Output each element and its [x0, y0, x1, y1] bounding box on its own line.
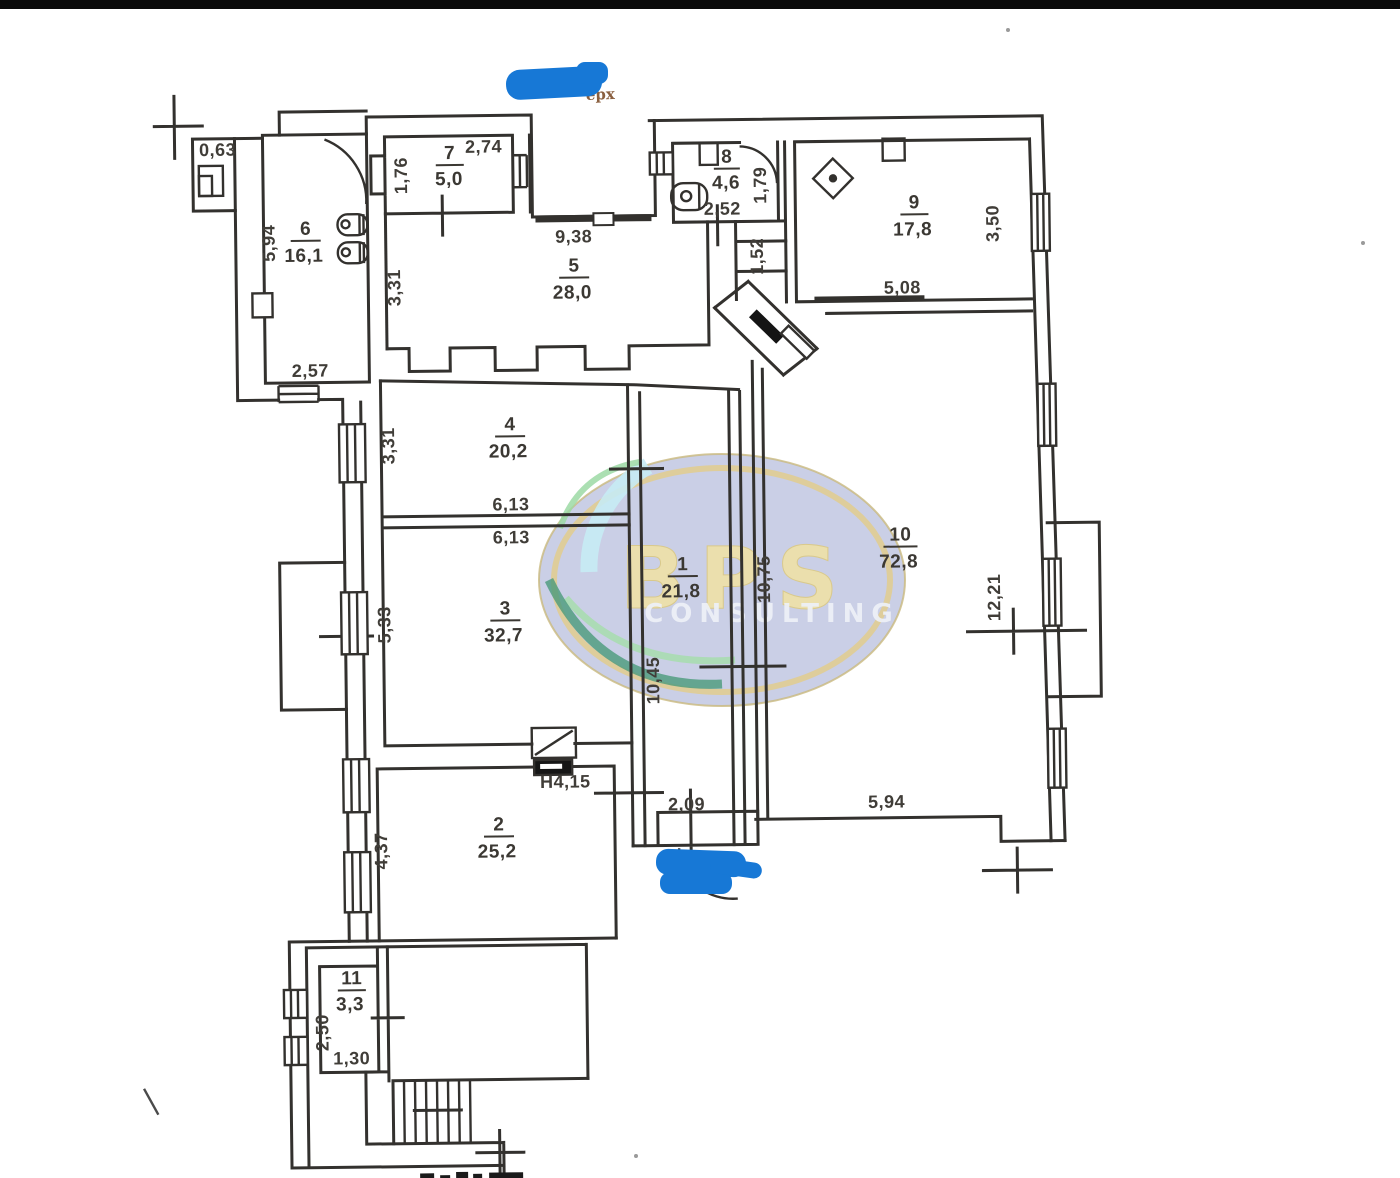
- scanned-floorplan-page: BPS CONSULTING: [0, 0, 1400, 1178]
- bathtub-icon: [671, 183, 707, 210]
- dim-3-31-top: 3,31: [384, 269, 404, 306]
- window-icon: [1031, 194, 1050, 251]
- room-4-number: 4: [504, 414, 515, 435]
- scan-edge-bar: [0, 0, 1400, 9]
- entry-fixture: [199, 166, 223, 196]
- window-icon: [650, 152, 673, 174]
- window-band: [814, 298, 924, 299]
- room-5-area: 28,0: [553, 282, 592, 303]
- dim-0-63: 0,63: [199, 140, 236, 160]
- hearth-icon: [532, 728, 577, 776]
- window-icon: [1043, 559, 1062, 626]
- dim-2-74: 2,74: [465, 136, 502, 156]
- redaction-marker-top: [505, 62, 608, 100]
- room-10-area: 72,8: [879, 551, 918, 572]
- fireplace-icon: [749, 309, 784, 343]
- floorplan-drawing: BPS CONSULTING: [0, 0, 1400, 1178]
- stray-mark: [144, 1089, 158, 1115]
- dim-1-76: 1,76: [391, 157, 411, 194]
- dim-6-13-b: 6,13: [493, 527, 530, 547]
- dim-2-52: 2,52: [704, 198, 741, 218]
- redaction-marker-bottom: [656, 848, 763, 894]
- window-icon: [1038, 384, 1057, 446]
- room-1-area: 21,8: [661, 581, 700, 602]
- dim-3-50: 3,50: [982, 205, 1002, 242]
- window-icon: [1048, 729, 1067, 788]
- dim-6-13-a: 6,13: [492, 494, 529, 514]
- dim-1-52: 1,52: [747, 238, 767, 275]
- window-icon: [284, 990, 307, 1018]
- dim-5-33: 5,33: [374, 606, 394, 643]
- room-8-number: 8: [721, 147, 732, 168]
- room-5-number: 5: [568, 255, 579, 276]
- dim-2-50: 2,50: [312, 1014, 332, 1051]
- room-1-number: 1: [677, 554, 688, 575]
- window-icon: [341, 592, 368, 654]
- dim-1-30: 1,30: [333, 1048, 370, 1068]
- room-4-area: 20,2: [489, 441, 528, 462]
- window-icon: [252, 293, 272, 317]
- room-7-area: 5,0: [435, 169, 463, 190]
- dim-2-57: 2,57: [292, 361, 329, 381]
- room-11-area: 3,3: [336, 994, 364, 1015]
- dim-5-94-left: 5,94: [259, 225, 279, 262]
- window-icon: [513, 155, 527, 187]
- dim-3-31-mid: 3,31: [378, 427, 398, 464]
- dim-10-75: 10,75: [754, 555, 775, 603]
- dim-12-21: 12,21: [984, 574, 1005, 622]
- room-9-number: 9: [909, 192, 920, 213]
- room-2-number: 2: [493, 814, 504, 835]
- door-arc-icon: [324, 139, 366, 204]
- dim-9-38: 9,38: [555, 226, 592, 246]
- window-icon: [278, 386, 318, 402]
- room-8-area: 4,6: [712, 172, 740, 193]
- wall-niche: [700, 143, 718, 165]
- stove-icon: [813, 159, 853, 199]
- window-icon: [344, 852, 371, 912]
- window-icon: [343, 759, 370, 812]
- window-icon: [284, 1037, 307, 1065]
- room-6-number: 6: [300, 219, 311, 240]
- window-icon: [339, 424, 366, 482]
- room-6-area: 16,1: [284, 246, 323, 267]
- window-sill: [593, 213, 613, 225]
- dim-h4-15: H4,15: [540, 771, 591, 792]
- room-7-number: 7: [444, 143, 455, 164]
- room-10-number: 10: [889, 524, 911, 545]
- dim-1-79: 1,79: [750, 167, 770, 204]
- dim-2-09: 2,09: [668, 794, 705, 814]
- bottom-cut-text: [420, 1171, 523, 1178]
- room-3-number: 3: [500, 598, 511, 619]
- room-2-area: 25,2: [478, 841, 517, 862]
- dim-4-37: 4,37: [371, 832, 391, 869]
- radiator-icon: [337, 214, 368, 263]
- room-3-area: 32,7: [484, 625, 523, 646]
- dim-5-94-bottom: 5,94: [868, 792, 905, 812]
- room-9-area: 17,8: [893, 219, 932, 240]
- dim-5-08: 5,08: [884, 277, 921, 297]
- room-11-number: 11: [341, 968, 362, 989]
- dim-10-45: 10,45: [643, 657, 664, 705]
